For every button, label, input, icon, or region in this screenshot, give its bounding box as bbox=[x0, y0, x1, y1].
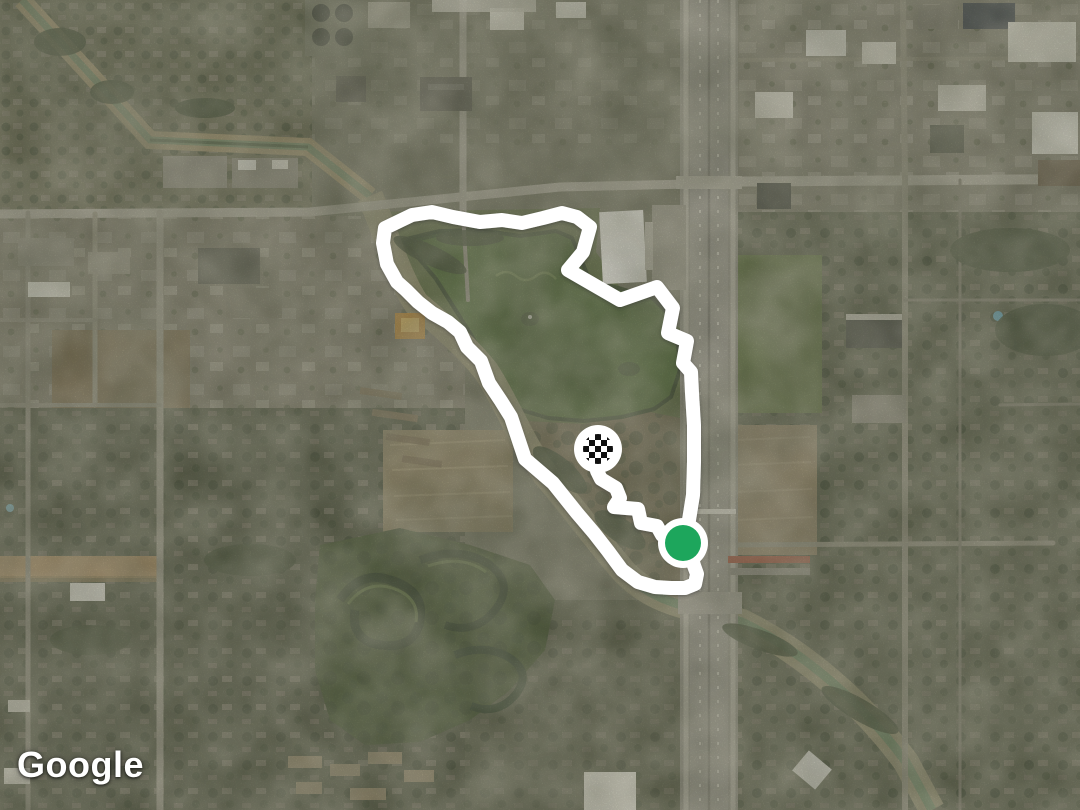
map-viewport[interactable]: Google bbox=[0, 0, 1080, 810]
google-logo[interactable]: Google bbox=[17, 744, 144, 786]
start-marker bbox=[658, 518, 708, 568]
start-marker-dot bbox=[665, 525, 701, 561]
finish-marker bbox=[574, 425, 622, 473]
satellite-imagery bbox=[0, 0, 1080, 810]
checkered-flag-icon bbox=[583, 434, 613, 464]
